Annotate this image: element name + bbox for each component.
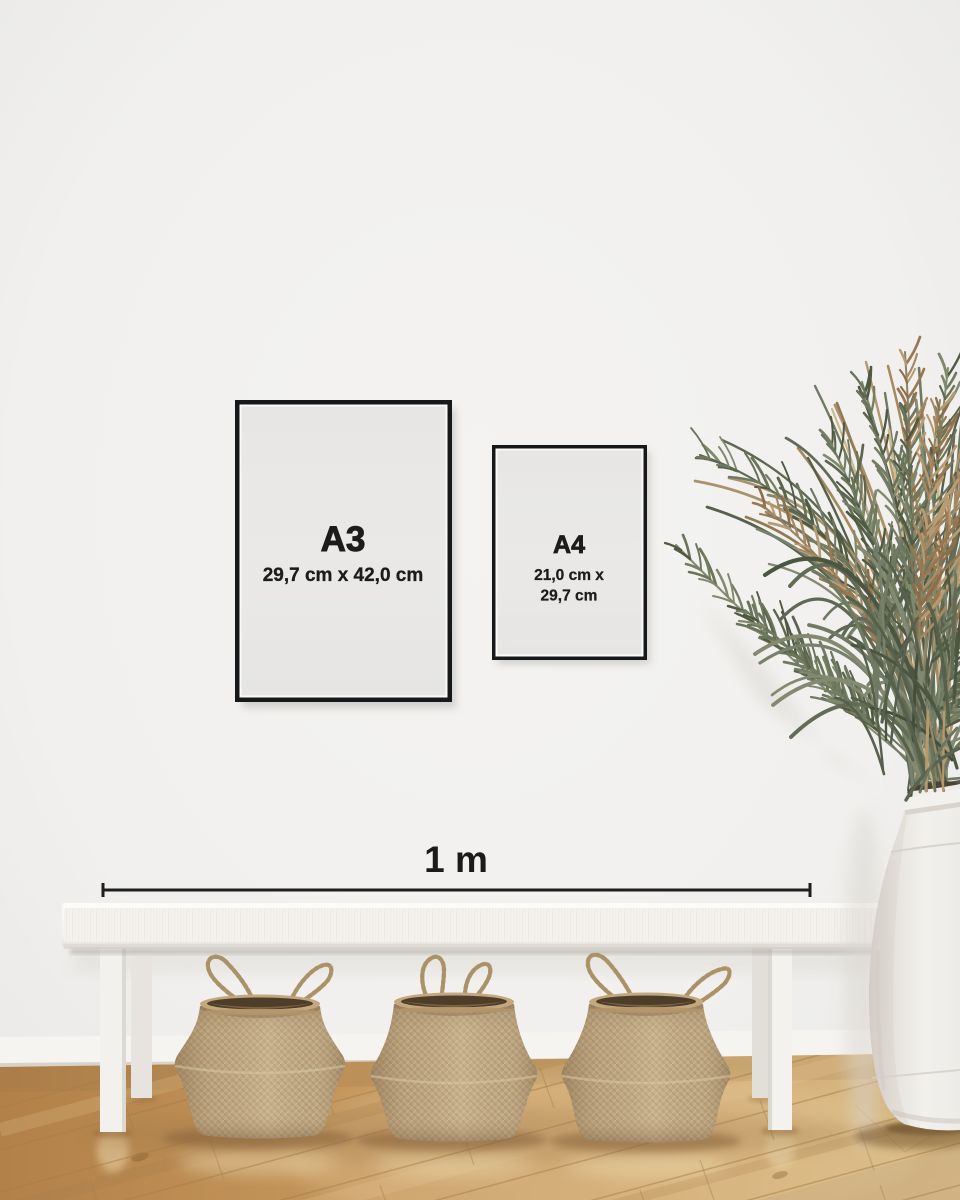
- svg-text:1 m: 1 m: [424, 839, 488, 880]
- svg-text:29,7 cm: 29,7 cm: [541, 588, 598, 605]
- svg-text:21,0 cm x: 21,0 cm x: [534, 567, 604, 584]
- svg-text:A4: A4: [553, 531, 585, 559]
- svg-text:29,7 cm x 42,0 cm: 29,7 cm x 42,0 cm: [263, 565, 424, 586]
- svg-text:A3: A3: [321, 520, 366, 559]
